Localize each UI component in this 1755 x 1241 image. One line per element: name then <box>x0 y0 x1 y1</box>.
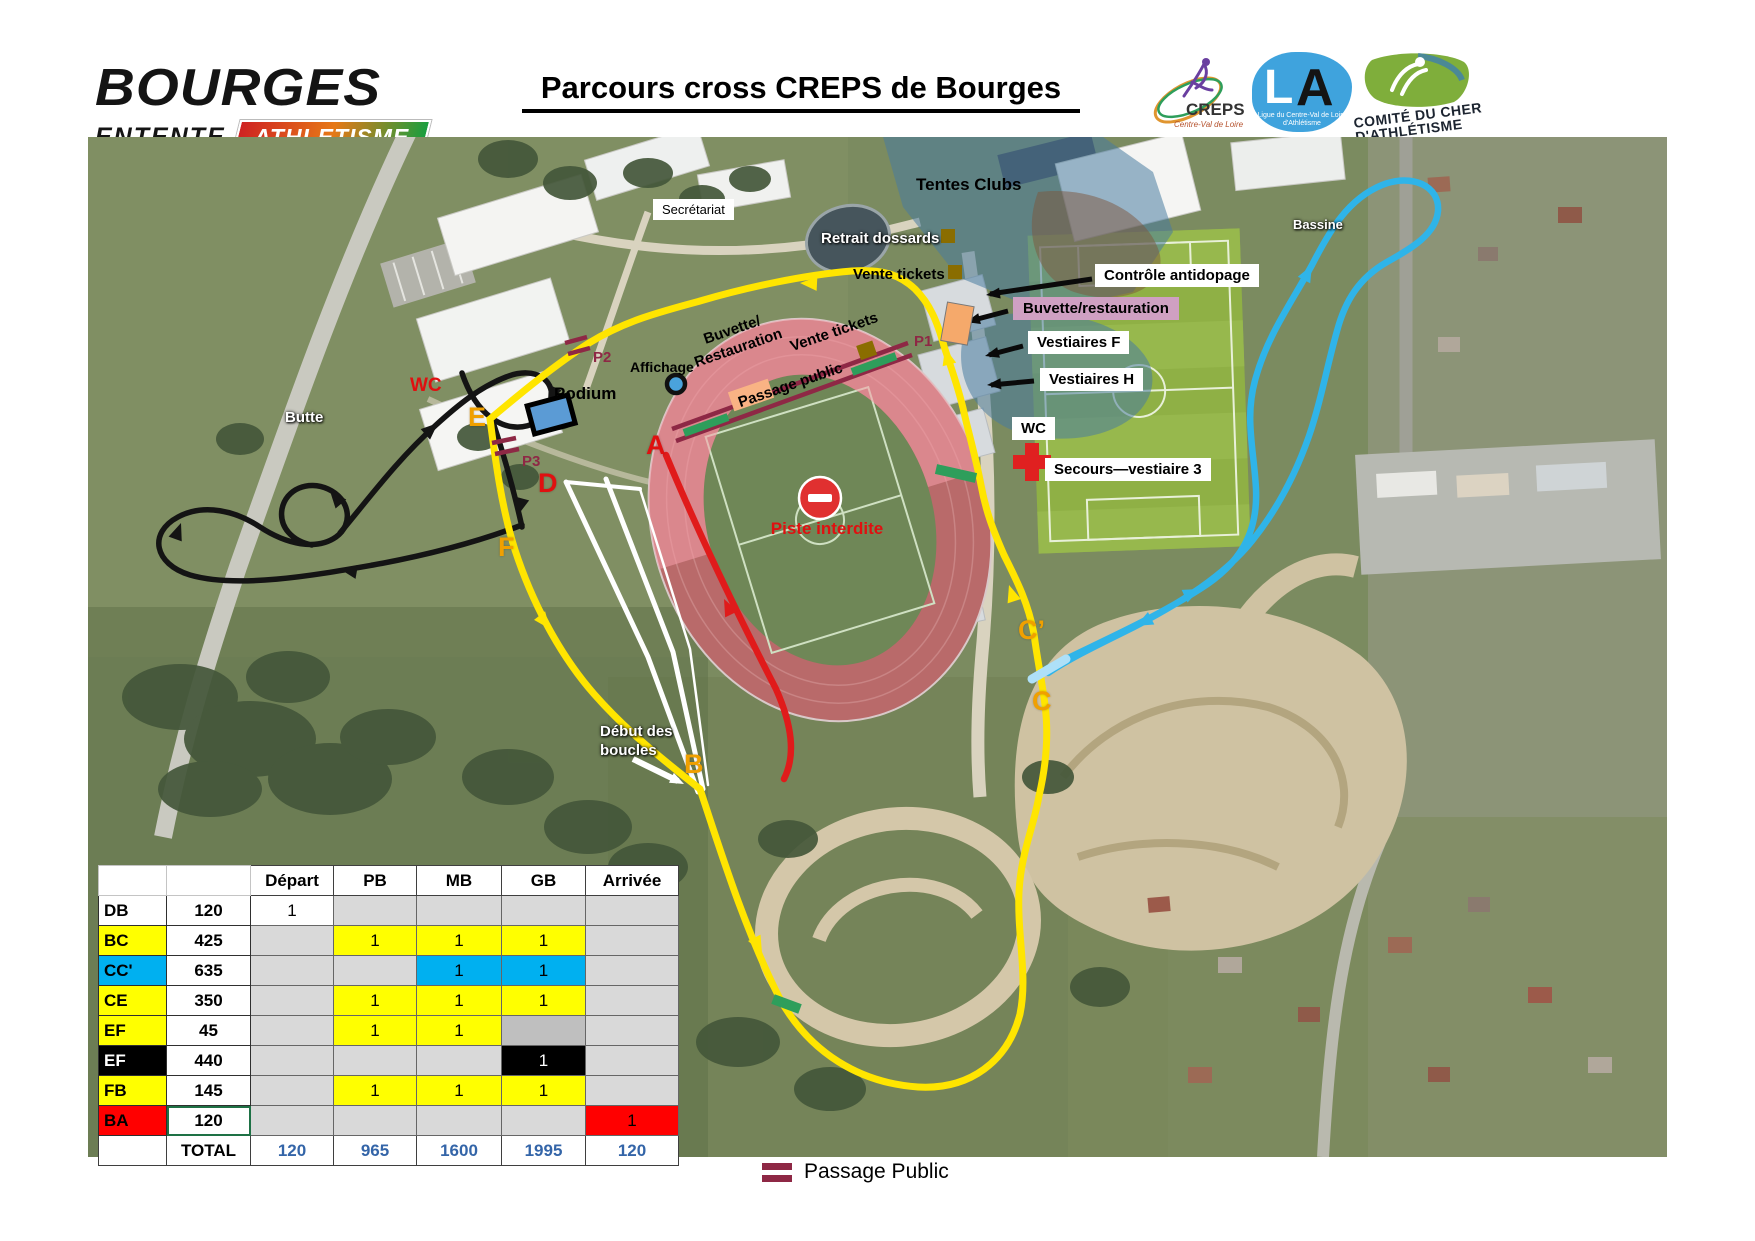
segment-label: EF <box>99 1046 167 1076</box>
segment-cell: 1 <box>334 926 417 956</box>
segment-cell <box>251 926 334 956</box>
point-a: A <box>646 430 666 461</box>
segment-cell: 1 <box>251 896 334 926</box>
lca-subtitle: Ligue du Centre-Val de Loire d'Athlétism… <box>1254 112 1350 129</box>
affichage-icon <box>667 375 685 393</box>
segment-label: DB <box>99 896 167 926</box>
segment-cell <box>334 896 417 926</box>
table-header-spacer <box>99 866 167 896</box>
segment-cell: 1 <box>586 1106 679 1136</box>
segment-cell <box>251 1016 334 1046</box>
segment-cell <box>251 1106 334 1136</box>
segment-cell <box>251 1076 334 1106</box>
industrial-yard <box>1355 439 1661 575</box>
segment-distance: 145 <box>167 1076 251 1106</box>
legend-passage-public: Passage Public <box>762 1160 949 1184</box>
segment-label: EF <box>99 1016 167 1046</box>
point-b: B <box>684 749 704 780</box>
segment-cell <box>417 896 502 926</box>
controle-antidopage-label: Contrôle antidopage <box>1095 264 1259 287</box>
legend-label: Passage Public <box>804 1160 949 1184</box>
segment-cell <box>251 1046 334 1076</box>
table-header-PB: PB <box>334 866 417 896</box>
tentes-clubs-label: Tentes Clubs <box>916 175 1021 195</box>
lca-letter-l: L <box>1264 60 1293 115</box>
segment-cell: 1 <box>502 986 586 1016</box>
page: BOURGES ENTENTE ATHLETISME Parcours cros… <box>0 0 1755 1241</box>
passage-public-icon <box>762 1163 792 1182</box>
segment-label: BA <box>99 1106 167 1136</box>
page-title: Parcours cross CREPS de Bourges <box>522 70 1080 113</box>
segment-cell <box>586 1076 679 1106</box>
segment-cell: 1 <box>334 1076 417 1106</box>
segment-cell <box>586 1046 679 1076</box>
segment-cell <box>251 986 334 1016</box>
total-value: 120 <box>586 1136 679 1166</box>
vente-tickets-icon <box>948 265 962 279</box>
creps-name: CREPS <box>1186 100 1245 120</box>
p2-label: P2 <box>593 349 611 366</box>
segment-cell: 1 <box>502 926 586 956</box>
segment-cell <box>586 1016 679 1046</box>
segment-cell <box>586 986 679 1016</box>
table-row: CC'63511 <box>99 956 679 986</box>
total-value: 120 <box>251 1136 334 1166</box>
segment-cell: 1 <box>502 1076 586 1106</box>
podium-label: Podium <box>554 384 616 404</box>
secretariat-label: Secrétariat <box>653 199 734 220</box>
segment-cell <box>502 896 586 926</box>
segment-cell <box>586 896 679 926</box>
creps-logo: CREPS Centre-Val de Loire <box>1146 56 1246 140</box>
p1-label: P1 <box>914 333 932 350</box>
table-total-row: TOTAL12096516001995120 <box>99 1136 679 1166</box>
secours-label: Secours—vestiaire 3 <box>1045 458 1211 481</box>
segment-distance: 120 <box>167 896 251 926</box>
distance-table: DépartPBMBGBArrivéeDB1201BC425111CC'6351… <box>98 865 679 1166</box>
segment-cell: 1 <box>417 1016 502 1046</box>
affichage-label: Affichage <box>630 359 694 375</box>
segment-cell: 1 <box>417 926 502 956</box>
point-e: E <box>468 402 486 433</box>
segment-cell: 1 <box>334 986 417 1016</box>
segment-cell: 1 <box>417 956 502 986</box>
segment-cell <box>586 926 679 956</box>
butte-label: Butte <box>285 409 323 426</box>
segment-cell <box>502 1106 586 1136</box>
table-row: FB145111 <box>99 1076 679 1106</box>
point-f: F <box>498 532 515 563</box>
bassine-label: Bassine <box>1293 217 1343 232</box>
segment-label: FB <box>99 1076 167 1106</box>
total-value: 1600 <box>417 1136 502 1166</box>
total-spacer <box>99 1136 167 1166</box>
segment-cell <box>586 956 679 986</box>
segment-label: BC <box>99 926 167 956</box>
segment-distance: 45 <box>167 1016 251 1046</box>
p3-label: P3 <box>522 453 540 470</box>
vente-tickets-label: Vente tickets <box>853 266 945 283</box>
retrait-dossards-label: Retrait dossards <box>821 230 939 247</box>
table-row: EF4401 <box>99 1046 679 1076</box>
table-header-spacer <box>167 866 251 896</box>
wc-red-label: WC <box>410 375 442 397</box>
segment-cell: 1 <box>502 956 586 986</box>
comite-cher-logo: COMITÉ DU CHER D'ATHLÉTISME <box>1358 50 1478 140</box>
segment-cell: 1 <box>334 1016 417 1046</box>
vestiaires-f-label: Vestiaires F <box>1028 331 1129 354</box>
segment-cell: 1 <box>502 1046 586 1076</box>
segment-cell: 1 <box>417 1076 502 1106</box>
segment-distance: 120 <box>167 1106 251 1136</box>
segment-cell: 1 <box>417 986 502 1016</box>
segment-cell <box>334 1046 417 1076</box>
table-header-GB: GB <box>502 866 586 896</box>
segment-cell <box>251 956 334 986</box>
point-d: D <box>538 468 558 499</box>
buvette-restauration-label: Buvette/restauration <box>1013 297 1179 320</box>
total-label: TOTAL <box>167 1136 251 1166</box>
table-row: DB1201 <box>99 896 679 926</box>
no-entry-icon <box>799 477 841 519</box>
table-header-Arrivée: Arrivée <box>586 866 679 896</box>
piste-interdite-label: Piste interdite <box>752 519 902 539</box>
segment-cell <box>334 956 417 986</box>
segment-label: CC' <box>99 956 167 986</box>
segment-distance: 440 <box>167 1046 251 1076</box>
total-value: 1995 <box>502 1136 586 1166</box>
wc-label: WC <box>1012 417 1055 440</box>
club-name: BOURGES <box>95 58 447 118</box>
retrait-dossards-icon <box>941 229 955 243</box>
creps-subtitle: Centre-Val de Loire <box>1174 120 1243 129</box>
table-row: BC425111 <box>99 926 679 956</box>
table-header-Départ: Départ <box>251 866 334 896</box>
segment-distance: 425 <box>167 926 251 956</box>
point-c-prime: C’ <box>1018 615 1045 646</box>
lca-logo: L A Ligue du Centre-Val de Loire d'Athlé… <box>1252 52 1352 138</box>
lca-letter-a: A <box>1296 58 1334 118</box>
segment-cell <box>502 1016 586 1046</box>
segment-distance: 350 <box>167 986 251 1016</box>
segment-cell <box>334 1106 417 1136</box>
segment-cell <box>417 1046 502 1076</box>
table-row: EF4511 <box>99 1016 679 1046</box>
table-row: BA1201 <box>99 1106 679 1136</box>
point-c: C <box>1032 686 1052 717</box>
segment-distance: 635 <box>167 956 251 986</box>
vestiaires-h-label: Vestiaires H <box>1040 368 1143 391</box>
total-value: 965 <box>334 1136 417 1166</box>
debut-boucles-label: Début desboucles <box>600 723 673 761</box>
segment-cell <box>417 1106 502 1136</box>
segment-label: CE <box>99 986 167 1016</box>
table-row: CE350111 <box>99 986 679 1016</box>
table-header-MB: MB <box>417 866 502 896</box>
